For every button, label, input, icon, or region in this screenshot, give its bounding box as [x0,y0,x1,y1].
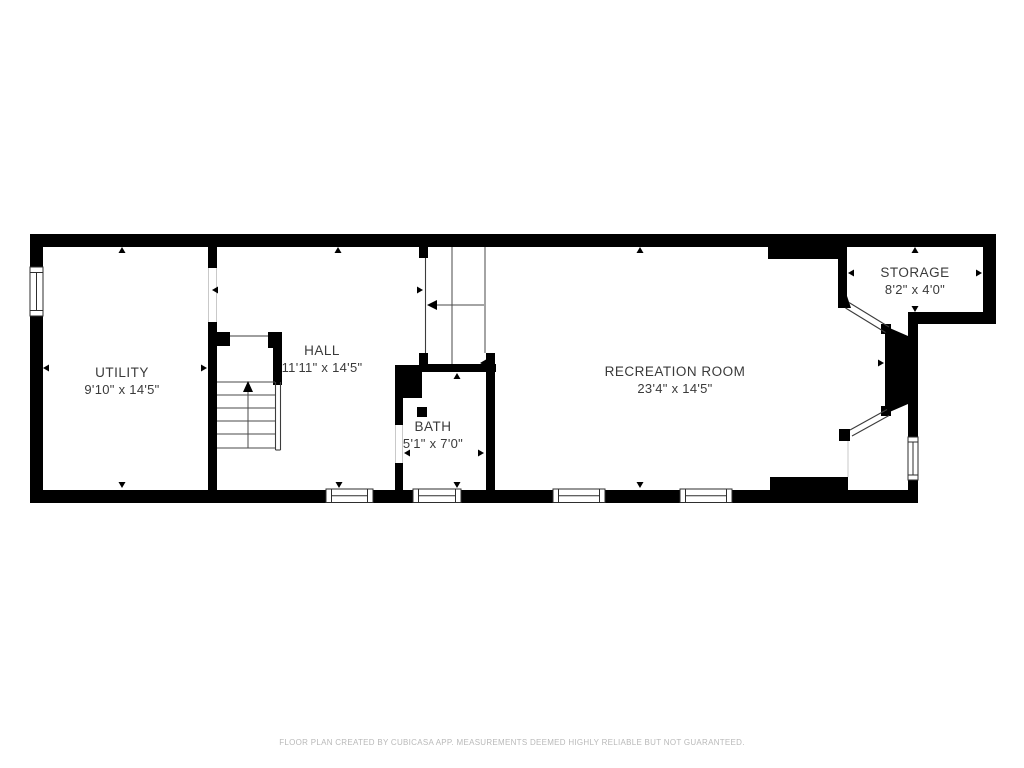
bath-door-jamb [417,407,427,417]
wall-bottom [30,490,918,503]
floor-plan-canvas: UTILITY 9'10" x 14'5" HALL 11'11" x 14'5… [0,0,1024,768]
window-nook-right [908,437,918,480]
room-dims-bath: 5'1" x 7'0" [403,436,463,451]
chimney-mass [885,326,908,414]
wall-storage-bottom [908,312,996,324]
window-recreation-1 [553,489,605,503]
stair-stub-top [419,247,428,258]
wall-right-storage [983,234,996,324]
room-dims-hall: 11'11" x 14'5" [282,360,363,375]
stairwell-wall-right [273,332,282,385]
window-bath [413,489,461,503]
bath-wall-left-lower [395,463,403,490]
room-label-bath: BATH [414,419,451,434]
room-dims-recreation: 23'4" x 14'5" [637,381,712,396]
wall-divider-lower [208,322,217,490]
storage-wall-left [838,247,847,296]
stairwell-block-left [217,332,230,346]
beam-top [768,247,838,259]
chimney-jamb-bottom [881,406,891,416]
wall-top [30,234,996,247]
window-utility-left [30,267,43,316]
footer-disclaimer: FLOOR PLAN CREATED BY CUBICASA APP. MEAS… [279,738,744,747]
wall-divider-upper [208,247,217,268]
bath-wall-left-upper [395,398,403,425]
bath-corner-block [395,365,422,398]
beam-bottom [770,477,848,490]
floor-plan-svg: UTILITY 9'10" x 14'5" HALL 11'11" x 14'5… [0,0,1024,768]
room-label-storage: STORAGE [880,265,949,280]
window-hall [326,489,373,503]
nook-door-jamb [839,429,850,441]
bath-wall-right [486,353,495,490]
room-label-utility: UTILITY [95,365,149,380]
room-label-recreation: RECREATION ROOM [605,364,746,379]
room-dims-utility: 9'10" x 14'5" [84,382,159,397]
window-recreation-2 [680,489,732,503]
room-label-hall: HALL [304,343,340,358]
room-dims-storage: 8'2" x 4'0" [885,282,945,297]
